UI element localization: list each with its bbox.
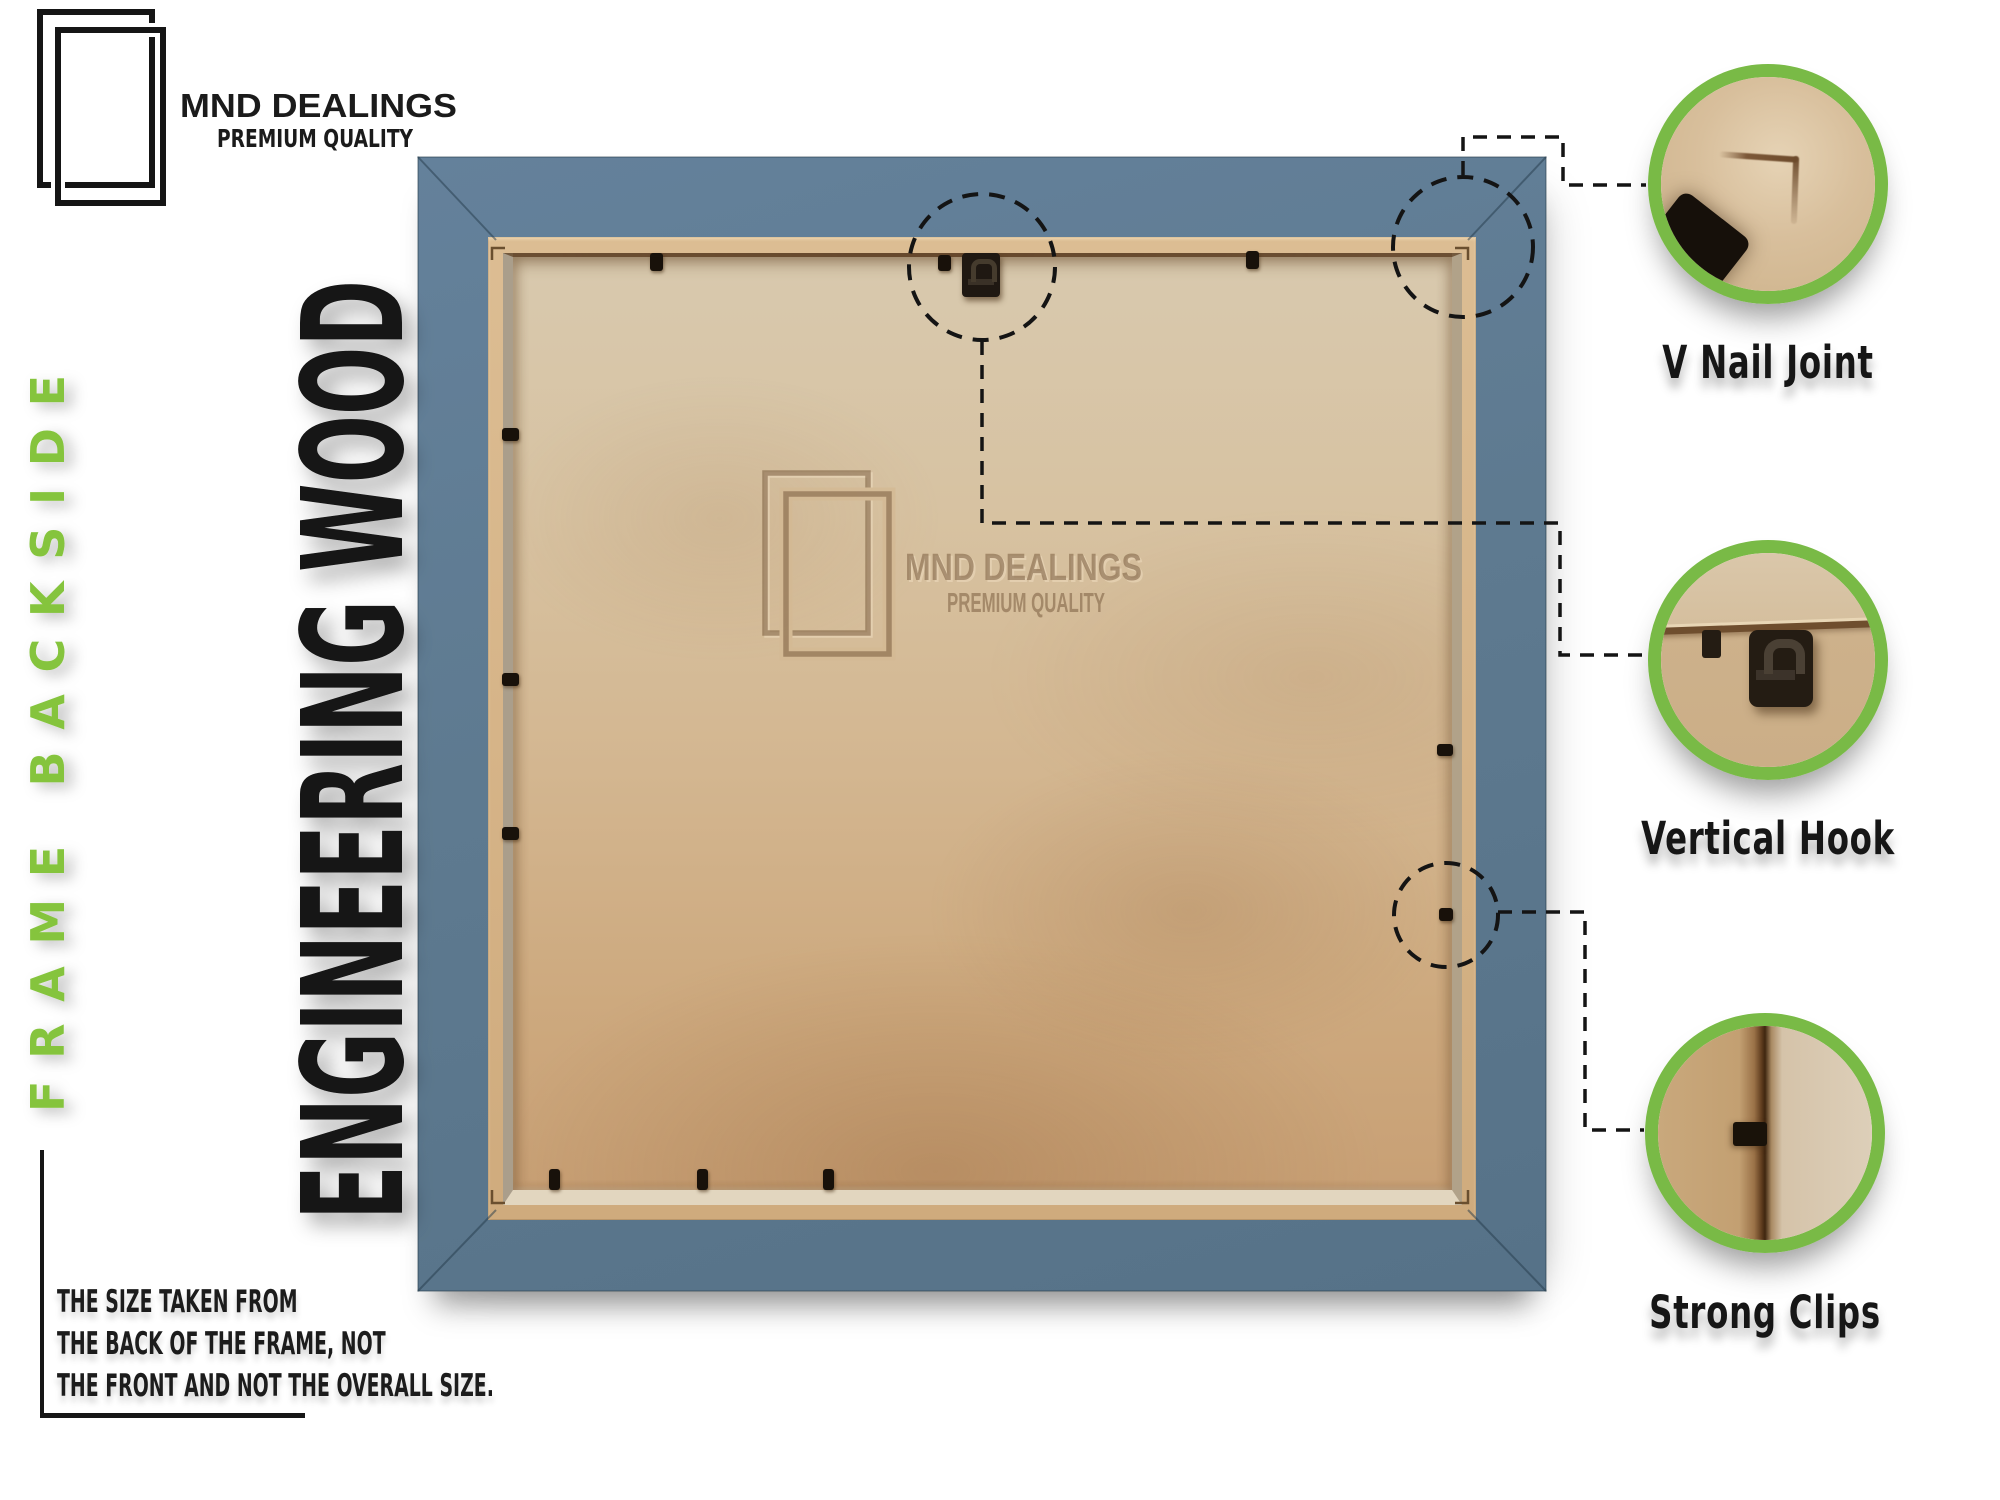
left-clip (502, 428, 519, 441)
left-clip (502, 673, 519, 686)
engineering-wood-label: ENGINEERING WOOD (273, 280, 436, 1220)
bottom-clip (549, 1169, 560, 1190)
top-clip (650, 253, 663, 271)
v-nail-joint-label: V Nail Joint (1595, 336, 1941, 389)
mdf-backing-board (503, 253, 1462, 1205)
vertical-hook-zoom-circle (1648, 540, 1888, 780)
right-clip (1439, 908, 1453, 921)
brand-name: MND DEALINGS (180, 87, 457, 124)
size-note-line: THE SIZE TAKEN FROM (57, 1284, 298, 1320)
left-clip (502, 827, 519, 840)
vertical-hook-label: Vertical Hook (1595, 812, 1941, 865)
clip-notch (1702, 630, 1721, 658)
strong-clips-zoom-circle (1645, 1013, 1885, 1253)
size-note-line: THE FRONT AND NOT THE OVERALL SIZE. (57, 1368, 494, 1404)
top-clip (1246, 251, 1259, 269)
vertical-hook-hardware (962, 253, 1000, 297)
note-bracket-horizontal (40, 1413, 305, 1418)
v-nail-joint-zoom-circle (1648, 64, 1888, 304)
size-note-line: THE BACK OF THE FRAME, NOT (57, 1326, 386, 1362)
frame-back-photo (418, 157, 1546, 1291)
top-clip (938, 255, 951, 271)
product-infographic: MND DEALINGS MND DEALINGS PREMIUM QUALIT… (0, 0, 2000, 1500)
bottom-clip (823, 1169, 834, 1190)
bottom-clip (697, 1169, 708, 1190)
brand-tagline: PREMIUM QUALITY (217, 124, 414, 153)
frame-backside-label: FRAME BACKSIDE (21, 375, 75, 1112)
strong-clips-label: Strong Clips (1592, 1286, 1938, 1339)
brand-logo (40, 12, 163, 203)
clip-hardware (1733, 1122, 1767, 1146)
hook-hardware (1749, 630, 1813, 707)
right-clip (1437, 744, 1453, 756)
note-bracket-vertical (40, 1150, 44, 1417)
